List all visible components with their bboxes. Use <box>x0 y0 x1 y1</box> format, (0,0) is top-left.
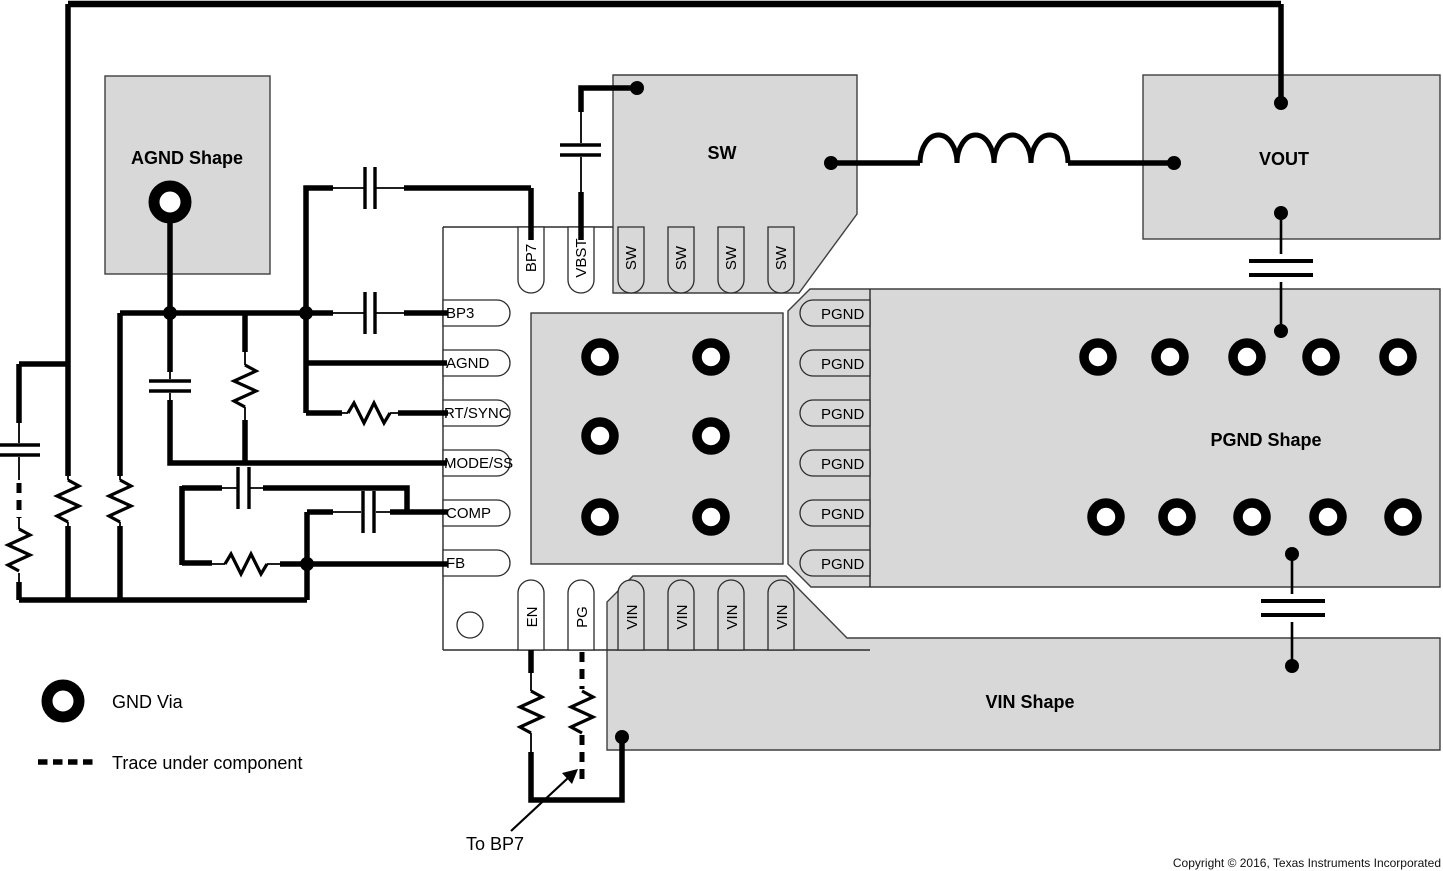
resistor <box>8 529 30 571</box>
pin1-indicator <box>457 612 483 638</box>
pin-label-modess: MODE/SS <box>444 455 513 472</box>
pin-label-comp: COMP <box>446 505 491 522</box>
pin-label-vin-1: VIN <box>624 604 641 629</box>
junction-dot <box>630 81 644 95</box>
gnd-via <box>1389 503 1417 531</box>
capacitor <box>1261 601 1325 615</box>
resistor <box>109 480 131 522</box>
junction-dot <box>1274 206 1288 220</box>
thermal-pad <box>531 313 783 564</box>
pin-label-vin-3: VIN <box>724 604 741 629</box>
pgnd-shape <box>788 289 1440 587</box>
capacitor <box>365 292 375 334</box>
gnd-via-legend-icon <box>47 685 79 717</box>
pin-label-pgnd-2: PGND <box>821 356 865 373</box>
inductor <box>920 135 1068 163</box>
resistor <box>348 403 390 423</box>
junction-dot <box>1274 324 1288 338</box>
junction-dot <box>1167 156 1181 170</box>
pin-label-vin-4: VIN <box>774 604 791 629</box>
capacitor <box>365 167 375 209</box>
junction-dot <box>1285 547 1299 561</box>
junction-dot <box>615 730 629 744</box>
pin-label-bp3: BP3 <box>446 305 474 322</box>
vin-shape-label: VIN Shape <box>985 692 1074 712</box>
capacitor <box>1249 261 1313 275</box>
pin-label-en: EN <box>524 607 541 628</box>
capacitor <box>149 381 191 391</box>
pin-label-pgnd-1: PGND <box>821 306 865 323</box>
pgnd-shape-label: PGND Shape <box>1210 430 1321 450</box>
pin-label-sw-3: SW <box>723 245 740 270</box>
copyright-note: Copyright © 2016, Texas Instruments Inco… <box>1173 856 1441 870</box>
gnd-via <box>697 503 725 531</box>
junction-dot <box>300 557 314 571</box>
pin-label-pgnd-5: PGND <box>821 506 865 523</box>
pin-label-bp7: BP7 <box>523 244 540 272</box>
gnd-via <box>1084 343 1112 371</box>
gnd-via <box>1233 343 1261 371</box>
junction-dot <box>1274 96 1288 110</box>
capacitor <box>363 491 374 533</box>
pin-label-vbst: VBST <box>573 238 590 277</box>
gnd-via <box>1314 503 1342 531</box>
gnd-via <box>586 343 614 371</box>
junction-dot <box>1285 659 1299 673</box>
capacitor <box>238 467 249 509</box>
resistor <box>571 691 593 733</box>
gnd-via <box>1163 503 1191 531</box>
resistor <box>520 691 542 733</box>
to-bp7-label: To BP7 <box>466 834 524 854</box>
resistor <box>57 480 79 522</box>
gnd-via <box>1307 343 1335 371</box>
gnd-via <box>697 422 725 450</box>
junction-dot <box>299 306 313 320</box>
pin-label-fb: FB <box>446 555 465 572</box>
junction-dot <box>163 306 177 320</box>
fb-pin-trace <box>182 563 448 600</box>
pin-label-vin-2: VIN <box>674 604 691 629</box>
bp7-trace <box>306 188 333 313</box>
pin-label-pgnd-3: PGND <box>821 406 865 423</box>
legend <box>38 685 93 762</box>
resistor <box>225 554 267 574</box>
agnd-shape <box>105 76 270 274</box>
capacitor <box>560 145 601 155</box>
pin-label-agnd: AGND <box>446 355 490 372</box>
capacitor <box>0 445 40 455</box>
pin-label-sw-2: SW <box>673 245 690 270</box>
gnd-via <box>154 186 186 218</box>
gnd-via <box>1092 503 1120 531</box>
pin-label-sw-1: SW <box>623 245 640 270</box>
agnd-shape-label: AGND Shape <box>131 148 243 168</box>
pin-label-rtsync: RT/SYNC <box>444 405 510 422</box>
gnd-via <box>1156 343 1184 371</box>
junction-dot <box>824 156 838 170</box>
gnd-via <box>586 503 614 531</box>
legend-gnd-via-label: GND Via <box>112 692 184 712</box>
gnd-via <box>586 422 614 450</box>
sw-shape-label: SW <box>708 143 737 163</box>
legend-trace-label: Trace under component <box>112 753 302 773</box>
gnd-via <box>1238 503 1266 531</box>
gnd-via <box>1384 343 1412 371</box>
resistor <box>234 365 256 407</box>
layout-canvas: AGND Shape SW VOUT PGND Shape VIN Shape … <box>0 0 1443 871</box>
vout-shape-label: VOUT <box>1259 149 1309 169</box>
pin-label-sw-4: SW <box>773 245 790 270</box>
gnd-via <box>697 343 725 371</box>
pcb-layout-diagram: AGND Shape SW VOUT PGND Shape VIN Shape … <box>0 0 1443 871</box>
pin-label-pgnd-4: PGND <box>821 456 865 473</box>
pin-label-pgnd-6: PGND <box>821 556 865 573</box>
pin-label-pg: PG <box>574 606 591 628</box>
